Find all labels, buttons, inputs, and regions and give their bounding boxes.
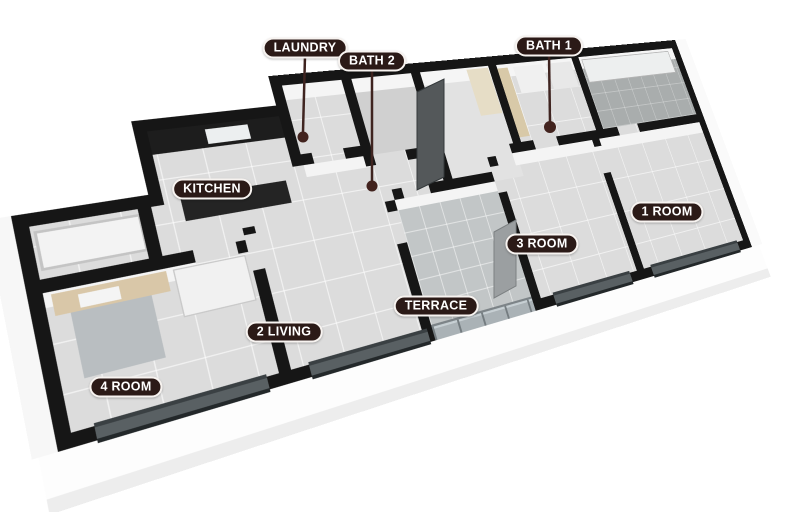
room-label-room4: 4 ROOM [89,377,162,398]
room-label-bath2: BATH 2 [338,51,406,72]
floorplan-scene: LAUNDRY BATH 2 BATH 1 KITCHEN 1 ROOM 3 R… [0,0,792,512]
room-label-kitchen: KITCHEN [172,179,252,200]
room-label-room1: 1 ROOM [630,202,703,223]
room-label-laundry: LAUNDRY [263,38,348,59]
room-label-living: 2 LIVING [246,322,323,343]
room-label-bath1: BATH 1 [515,36,583,57]
room-label-terrace: TERRACE [394,296,479,317]
room-label-room3: 3 ROOM [505,234,578,255]
